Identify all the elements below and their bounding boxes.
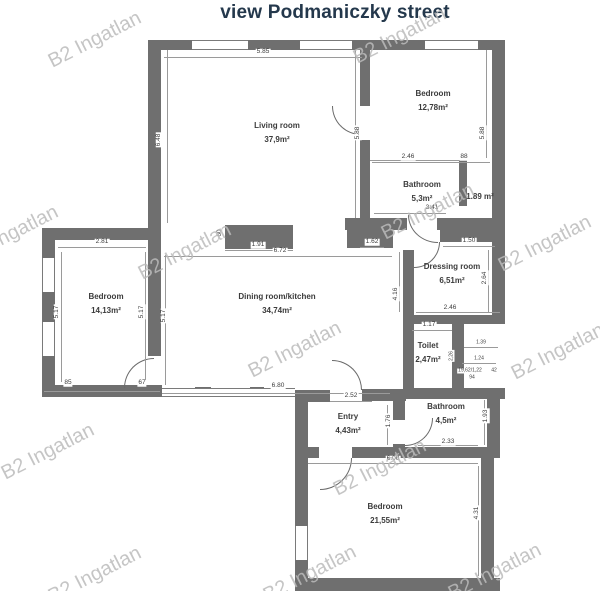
- dimension-label: 4.16: [393, 287, 400, 302]
- dimension-line: [372, 162, 490, 163]
- dimension-line: [412, 330, 452, 331]
- dimension-label: 1.50: [462, 238, 477, 245]
- room-label-entry: Entry 4,43m²: [335, 410, 360, 438]
- wall: [295, 458, 308, 590]
- window: [425, 40, 478, 50]
- dimension-label: 2.46: [401, 154, 416, 161]
- wall: [481, 455, 494, 588]
- room-area: 14,13m²: [88, 304, 123, 318]
- dimension-label: 2,26: [450, 350, 455, 362]
- dimension-label: 4.31: [474, 506, 481, 521]
- dimension-label: 2.46: [443, 305, 458, 312]
- window: [300, 40, 352, 50]
- dimension-label: 1.76: [386, 414, 393, 429]
- dimension-line: [374, 213, 446, 214]
- window: [192, 40, 248, 50]
- window: [42, 322, 55, 356]
- room-name: Dressing room: [424, 260, 480, 274]
- dimension-label: 2.81: [95, 239, 110, 246]
- wall: [360, 50, 370, 106]
- room-label-bathroom-bottom: Bathroom 4,5m²: [427, 400, 465, 428]
- room-label-bathroom-top: Bathroom 5,3m²: [403, 178, 441, 206]
- dimension-line: [164, 256, 392, 257]
- dimension-line: [360, 247, 384, 248]
- dimension-line: [464, 347, 498, 348]
- dimension-line: [308, 463, 478, 464]
- dimension-line: [61, 252, 62, 382]
- dimension-label: 2.64: [482, 271, 489, 286]
- dimension-label: 42: [490, 369, 498, 374]
- wall: [403, 250, 414, 396]
- dimension-label: 60: [217, 228, 224, 237]
- room-name: Bathroom: [427, 400, 465, 414]
- dimension-label: 5.17: [139, 305, 146, 320]
- dimension-line: [330, 401, 372, 402]
- room-label-dressing-room: Dressing room 6,51m²: [424, 260, 480, 288]
- room-name: Dining room/kitchen: [238, 290, 315, 304]
- room-label-bedroom-bottom: Bedroom 21,55m²: [367, 500, 402, 528]
- door-arc: [408, 215, 438, 243]
- room-area: 5,3m²: [403, 192, 441, 206]
- dimension-label: 6.72: [273, 248, 288, 255]
- floor-plan-page: view Podmaniczky street: [0, 0, 600, 591]
- room-name: Living room: [254, 119, 300, 133]
- window: [42, 258, 55, 292]
- dimension-line: [486, 50, 487, 158]
- dimension-label: 6.00: [386, 456, 401, 463]
- wall: [492, 230, 505, 322]
- wall: [437, 218, 505, 230]
- dimension-label: 1.39: [475, 341, 487, 346]
- wall: [295, 578, 500, 591]
- dimension-label: 85: [63, 380, 72, 387]
- dimension-label: 5.17: [54, 305, 61, 320]
- room-name: Bedroom: [415, 87, 450, 101]
- room-area: 6,51m²: [424, 274, 480, 288]
- dimension-label: 67: [137, 380, 146, 387]
- room-name: Bedroom: [88, 290, 123, 304]
- dimension-line: [416, 312, 500, 313]
- room-name: Entry: [335, 410, 360, 424]
- dimension-label: 94: [468, 376, 476, 381]
- room-label-bedroom-top: Bedroom 12,78m²: [415, 87, 450, 115]
- room-name: Bathroom: [403, 178, 441, 192]
- room-label-living-room: Living room 37,9m²: [254, 119, 300, 147]
- dimension-label: 2.33: [441, 439, 456, 446]
- dimension-line: [443, 246, 495, 247]
- room-area: 21,55m²: [367, 514, 402, 528]
- room-label-niche: 1.89 m²: [466, 190, 494, 204]
- dimension-line: [167, 50, 168, 223]
- dimension-line: [462, 363, 496, 364]
- dimension-label: 1.93: [483, 409, 490, 424]
- dimension-line: [164, 57, 362, 58]
- room-area: 4,5m²: [427, 414, 465, 428]
- room-name: Toilet: [415, 339, 440, 353]
- dimension-label: 5.17: [161, 309, 168, 324]
- wall: [360, 140, 370, 220]
- dimension-label: 5.88: [355, 126, 362, 141]
- dimension-label: 88: [459, 154, 468, 161]
- dimension-line: [399, 252, 400, 312]
- room-area: 1.89 m²: [466, 190, 494, 204]
- dimension-label: 1.91: [251, 242, 266, 249]
- window: [295, 526, 308, 560]
- room-label-bedroom-left: Bedroom 14,13m²: [88, 290, 123, 318]
- dimension-label: 6.80: [271, 383, 286, 390]
- dimension-line: [58, 247, 146, 248]
- dimension-label: 19,62/1,22: [457, 369, 483, 374]
- dimension-label: 1.62: [365, 239, 380, 246]
- door-arc: [332, 360, 362, 390]
- room-area: 2,47m²: [415, 353, 440, 367]
- floor-plan: 5.85 6.48 5.88 5.88 2.46 88 3.41 1.62 1.…: [0, 0, 600, 591]
- wall: [393, 398, 405, 420]
- dimension-label: 5.88: [480, 126, 487, 141]
- room-area: 12,78m²: [415, 101, 450, 115]
- room-area: 4,43m²: [335, 424, 360, 438]
- room-label-toilet: Toilet 2,47m²: [415, 339, 440, 367]
- dimension-label: 6.48: [156, 133, 163, 148]
- dimension-label: 1.17: [422, 322, 437, 329]
- dimension-label: 2.52: [344, 393, 359, 400]
- room-area: 37,9m²: [254, 133, 300, 147]
- wall: [148, 240, 161, 356]
- dimension-line: [44, 391, 160, 392]
- wall: [492, 40, 505, 230]
- room-area: 34,74m²: [238, 304, 315, 318]
- dimension-line: [478, 466, 479, 576]
- dimension-label: 5.85: [256, 49, 271, 56]
- wall: [352, 447, 500, 458]
- room-label-dining-room-kitchen: Dining room/kitchen 34,74m²: [238, 290, 315, 318]
- wall: [295, 447, 319, 458]
- room-name: Bedroom: [367, 500, 402, 514]
- dimension-label: 1.24: [473, 357, 485, 362]
